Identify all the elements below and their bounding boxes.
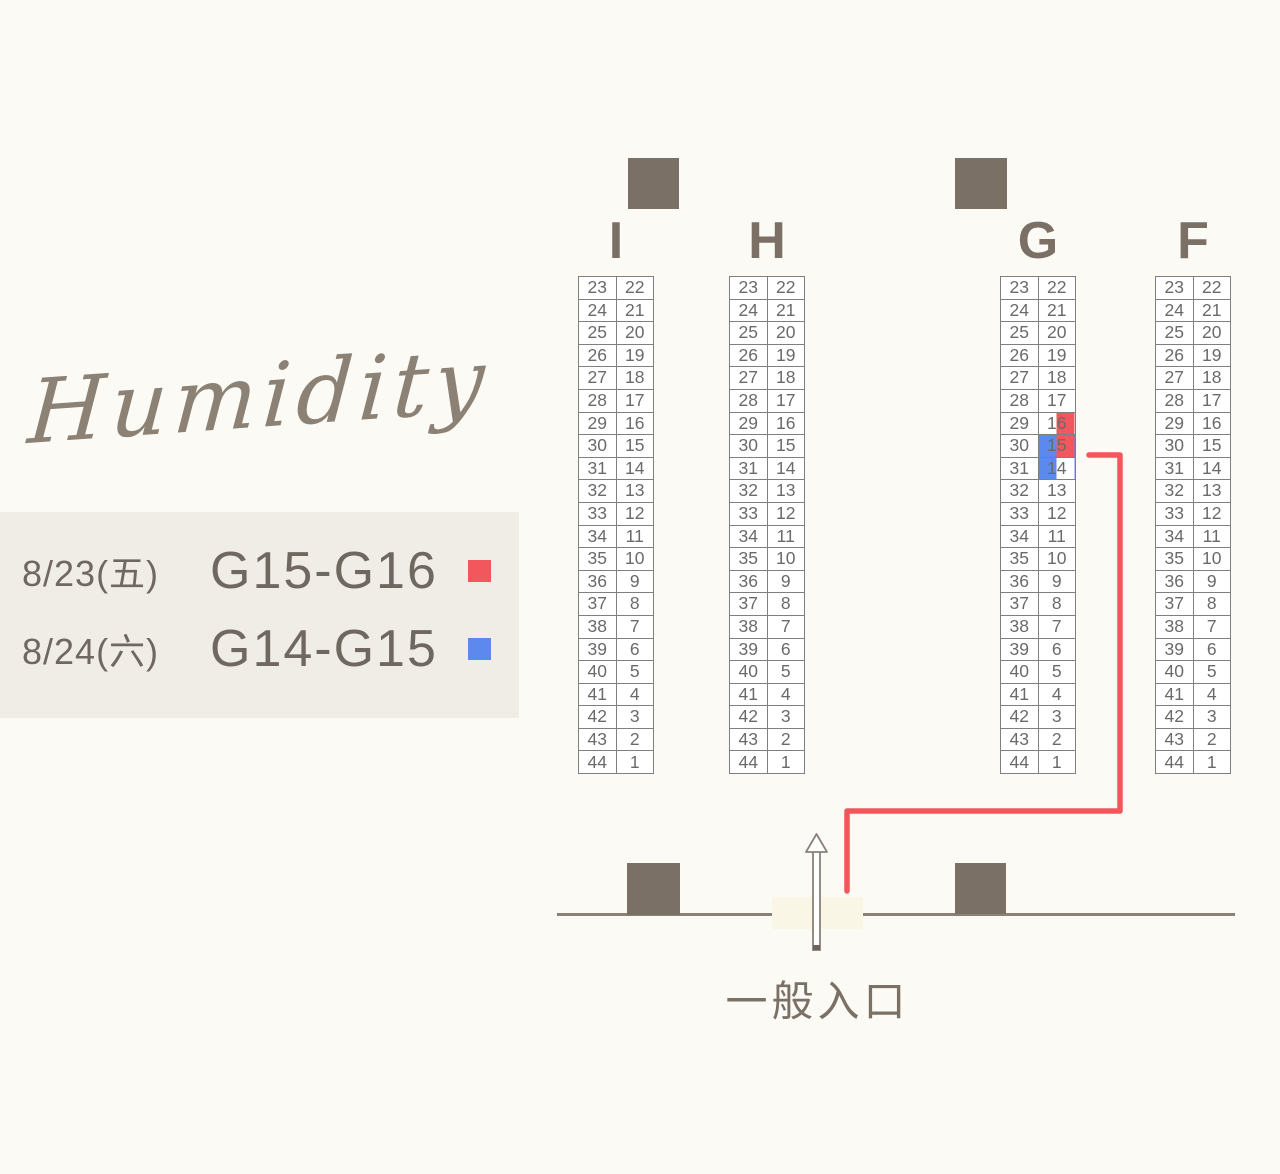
entrance-label: 一般入口 xyxy=(655,968,980,1029)
venue-floor-map: Humidity 8/23(五) G15-G16 8/24(六) G14-G15… xyxy=(0,0,1280,1174)
entrance-arrow-icon xyxy=(804,832,830,958)
route-path xyxy=(0,0,1280,1174)
